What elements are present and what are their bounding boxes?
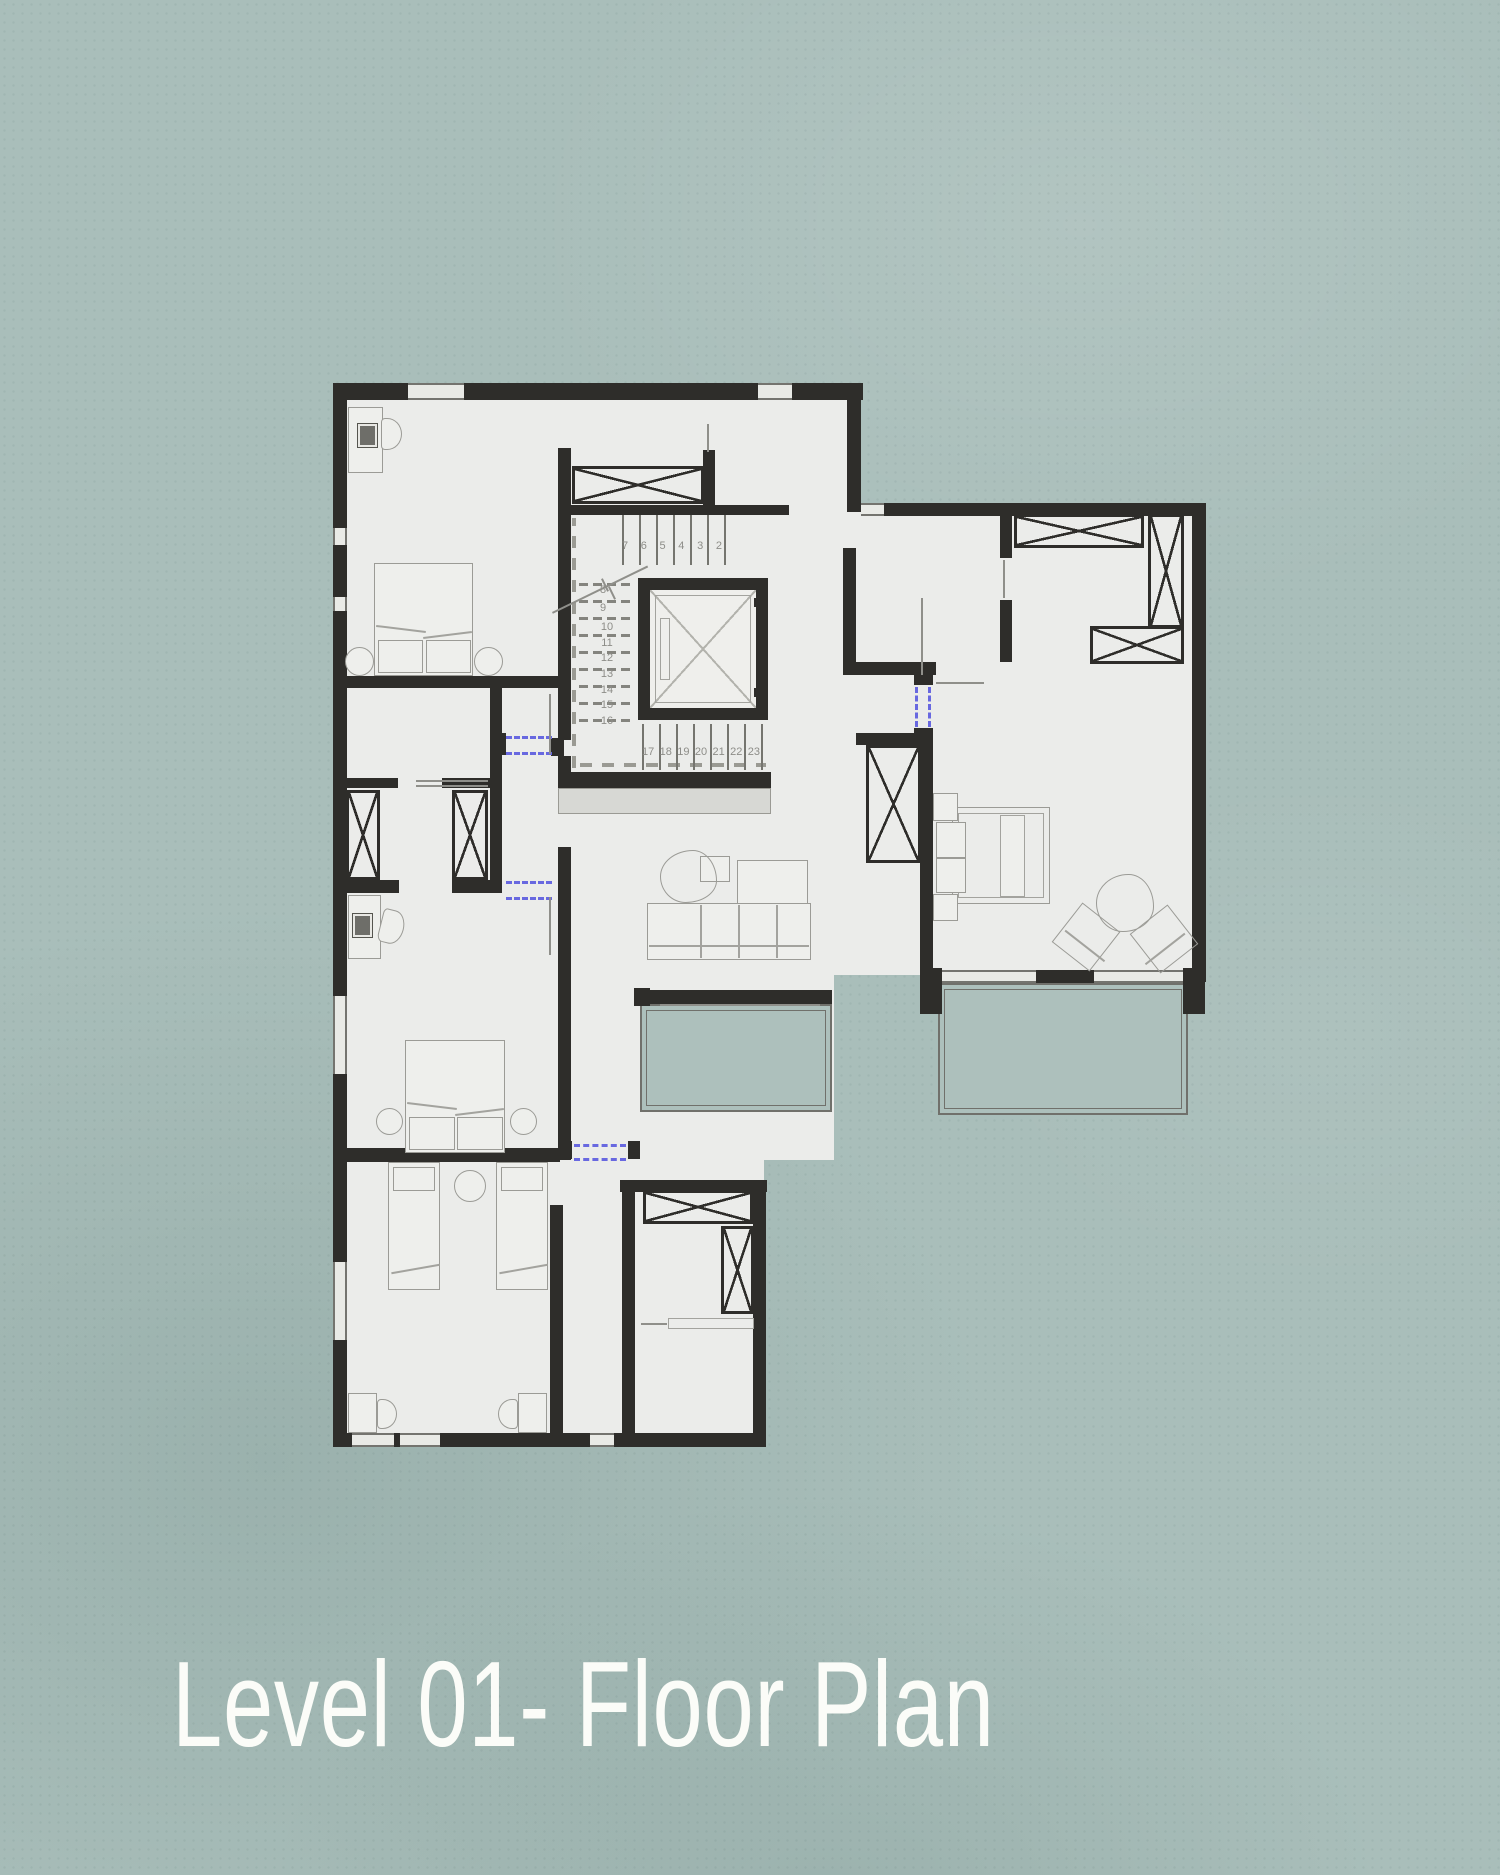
step-number: 4	[678, 539, 684, 553]
door-swing-line	[936, 682, 984, 684]
wall-stair-left-upper	[558, 448, 571, 740]
floor-plan: 765432 10111213141516 8 9 17181920212223	[0, 0, 1500, 1875]
elevator-shaft	[638, 578, 768, 720]
door-dashed-bedroom-b	[928, 687, 931, 727]
desk-monitor	[352, 913, 373, 938]
door-cap-bottom	[914, 728, 933, 738]
desk-monitor	[357, 423, 378, 448]
door-dashed-corridor1-b	[506, 752, 552, 755]
sofa-seat-divider	[738, 905, 740, 958]
window-bedroom-2	[1094, 970, 1183, 983]
wall-bedroom-left	[920, 733, 933, 970]
step-number-9: 9	[600, 601, 606, 615]
wardrobe-utility-top	[643, 1190, 753, 1224]
door-dashed-kids-b	[574, 1158, 626, 1161]
door-leaf-line	[549, 897, 551, 955]
balcony-post-right	[1183, 968, 1205, 1014]
sofa-seat-divider	[700, 905, 702, 958]
door-dashed-corridor1-a	[506, 736, 552, 739]
wardrobe-right-wing-bottom	[1090, 626, 1184, 664]
balcony-right	[938, 983, 1188, 1115]
plan-title: Level 01- Floor Plan	[172, 1634, 995, 1774]
window-bottom-2	[590, 1433, 614, 1447]
bed-pillow	[409, 1117, 455, 1150]
wall-bedroomA-bottom	[333, 676, 571, 688]
wardrobe-utility-right	[721, 1226, 754, 1314]
wall-closetroom-bottom-a	[333, 880, 399, 893]
step-number: 21	[713, 745, 725, 759]
window-bedroom-1	[942, 970, 1036, 983]
wall-closet-divider-b	[1000, 600, 1012, 662]
stair-numbers-lower: 17181920212223	[642, 745, 760, 759]
bed-runner	[1000, 815, 1025, 897]
wardrobe-dressing-1	[346, 790, 380, 880]
elevator-door-panel	[660, 618, 670, 680]
wall-living-bottom	[648, 990, 832, 1004]
nightstand	[454, 1170, 486, 1202]
step-number: 15	[594, 698, 620, 712]
sofa-base	[647, 903, 811, 960]
desk	[518, 1393, 547, 1433]
coffee-table	[660, 850, 717, 903]
stair-trim-left	[572, 518, 576, 768]
balcony-right-parapet	[944, 989, 1182, 1109]
step-number: 20	[695, 745, 707, 759]
window-left-1	[333, 528, 347, 545]
step-number: 19	[677, 745, 689, 759]
door-dashed-corridor2-a	[506, 881, 552, 884]
step-number: 2	[716, 539, 722, 553]
wall-kidsroom-right	[550, 1205, 563, 1433]
utility-shelf	[668, 1318, 754, 1329]
wall-living-post	[634, 988, 650, 1006]
door-dashed-bedroom-a	[915, 687, 918, 727]
wall-dressing-bottom-a	[340, 778, 398, 788]
wall-closetroom-right	[490, 788, 502, 893]
door-dashed-corridor2-b	[506, 897, 552, 900]
elevator-tick-top	[754, 598, 765, 607]
bed-pillow	[936, 822, 966, 858]
step-number: 13	[594, 667, 620, 681]
window-top-1	[408, 383, 464, 400]
closet-shelf-line	[416, 785, 488, 787]
balcony-middle-parapet	[646, 1010, 826, 1106]
stair-numbers-upper: 765432	[622, 539, 722, 553]
step-number: 3	[697, 539, 703, 553]
balcony-post-left	[920, 968, 942, 1014]
wardrobe-bedroom-west	[866, 745, 921, 863]
nightstand	[474, 647, 503, 676]
step-number: 16	[594, 714, 620, 728]
wall-closet-divider-a	[1000, 512, 1012, 558]
utility-rod-line	[641, 1323, 667, 1325]
step-number: 17	[642, 745, 654, 759]
bed-pillow	[378, 640, 423, 673]
stair-numbers-mid: 10111213141516	[594, 620, 620, 728]
step-number: 18	[660, 745, 672, 759]
nightstand	[933, 793, 958, 821]
wall-upper-right-room-left	[843, 548, 856, 675]
door-post	[560, 1141, 572, 1159]
wall-right-wing-right	[1192, 503, 1206, 982]
door-leaf	[551, 738, 564, 756]
door-cap-top	[914, 675, 933, 685]
bed-pillow	[457, 1117, 503, 1150]
step-number: 12	[594, 651, 620, 665]
closet-shelf-line	[416, 780, 488, 782]
window-bottom-mullion	[394, 1433, 400, 1447]
wall-dressing-right	[490, 676, 502, 788]
desk	[348, 1393, 377, 1433]
step-number: 6	[641, 539, 647, 553]
closet-door-line	[1003, 560, 1005, 598]
wall-stair-bottom	[558, 772, 771, 788]
railing-post	[703, 450, 715, 512]
railing-post-line	[707, 424, 709, 452]
step-number: 23	[748, 745, 760, 759]
door-leaf-line	[921, 598, 923, 676]
window-left-3	[333, 996, 347, 1074]
step-number: 11	[594, 636, 620, 650]
wall-bedroom-bottom-mid	[1036, 970, 1094, 983]
wall-utility-right	[753, 1180, 766, 1440]
step-number: 7	[622, 539, 628, 553]
bed-pillow	[936, 858, 966, 893]
elevator-tick-bottom	[754, 688, 765, 697]
step-number: 22	[730, 745, 742, 759]
step-number: 14	[594, 683, 620, 697]
stair-void-railing	[572, 466, 704, 504]
nightstand	[345, 647, 374, 676]
balcony-middle	[640, 1004, 832, 1112]
window-step	[861, 503, 884, 516]
wall-closetroom-bottom-b	[452, 880, 502, 893]
door-post	[628, 1141, 640, 1159]
wardrobe-right-wing-top	[1014, 514, 1144, 548]
wall-utility-left	[622, 1180, 635, 1445]
wardrobe-dressing-2	[452, 790, 488, 880]
bed-pillow	[501, 1167, 543, 1191]
step-number: 10	[594, 620, 620, 634]
wall-upper-block-right	[847, 388, 861, 512]
page: { "title": "Level 01- Floor Plan", "colo…	[0, 0, 1500, 1875]
step-number: 5	[660, 539, 666, 553]
window-left-4	[333, 1262, 347, 1340]
wall-corridor-left	[558, 847, 571, 1160]
nightstand	[510, 1108, 537, 1135]
wall-stair-top-inner	[570, 505, 789, 515]
window-top-2	[758, 383, 792, 400]
nightstand	[376, 1108, 403, 1135]
window-left-2	[333, 597, 347, 611]
wardrobe-right-wing-right	[1148, 514, 1184, 628]
stair-landing-apron	[558, 788, 771, 814]
sofa-chaise	[737, 860, 808, 908]
nightstand	[933, 894, 958, 921]
door-leaf-line	[549, 694, 551, 754]
bed-pillow	[393, 1167, 435, 1191]
door-dashed-kids-a	[574, 1144, 626, 1147]
sofa-seat-divider	[776, 905, 778, 958]
living-window-line	[660, 1004, 820, 1006]
bed-pillow	[426, 640, 471, 673]
sofa-back-line	[649, 945, 809, 947]
